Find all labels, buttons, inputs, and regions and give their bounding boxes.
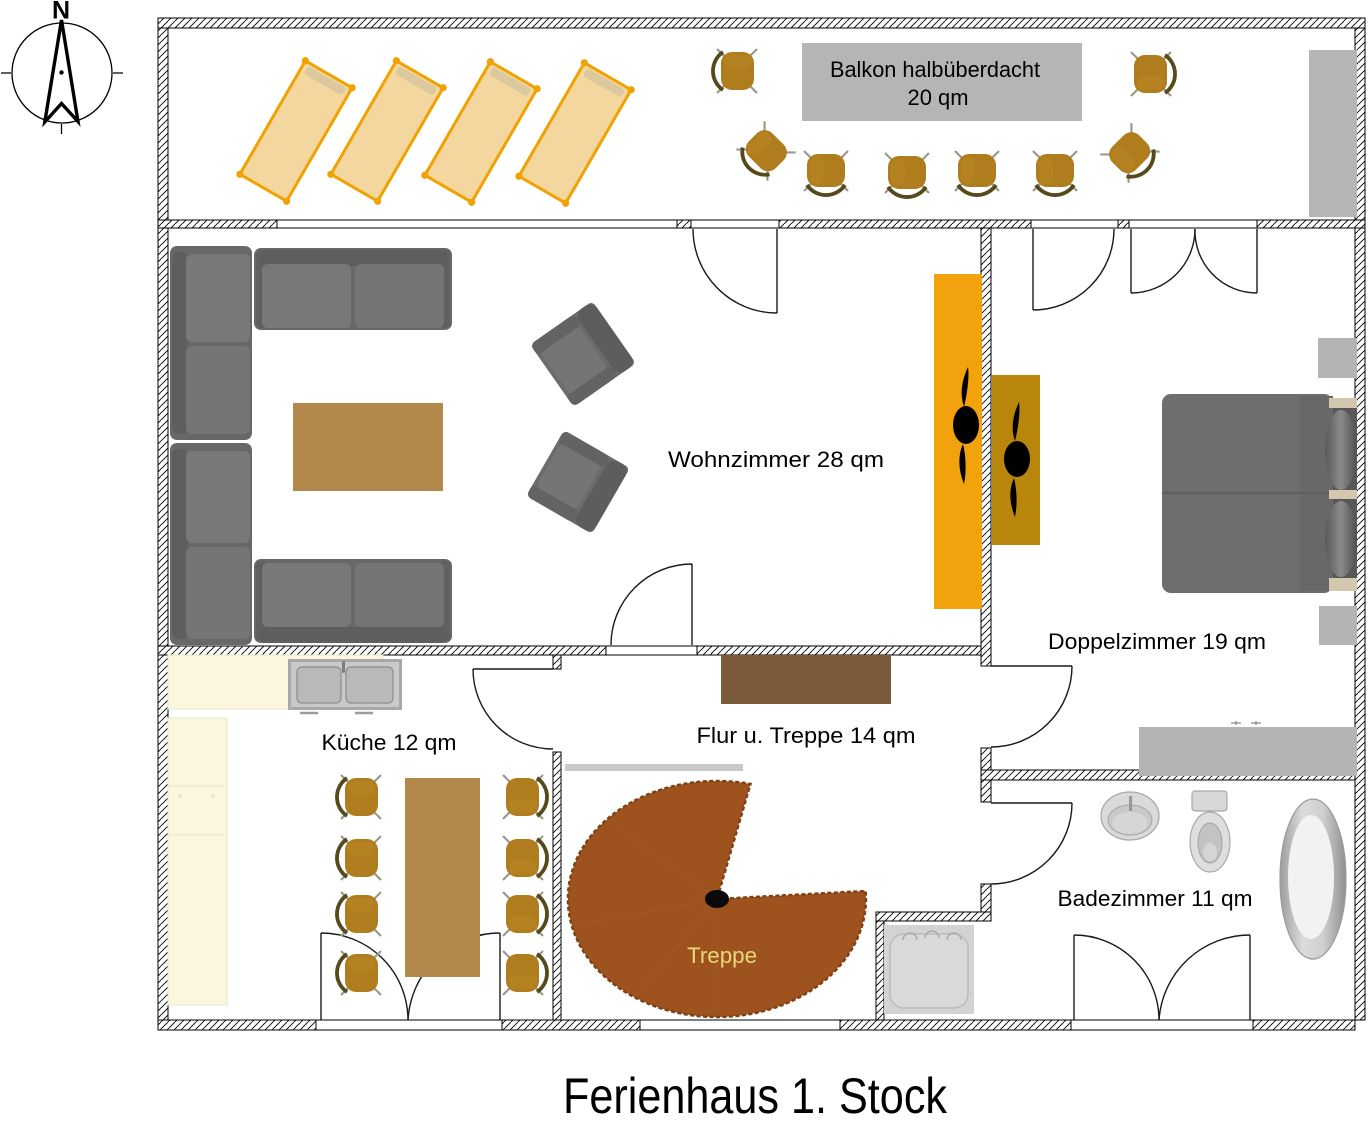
svg-text:Treppe: Treppe bbox=[687, 943, 757, 968]
svg-text:Flur u. Treppe 14 qm: Flur u. Treppe 14 qm bbox=[697, 723, 916, 748]
svg-text:Doppelzimmer 19 qm: Doppelzimmer 19 qm bbox=[1048, 629, 1266, 654]
svg-text:Wohnzimmer 28 qm: Wohnzimmer 28 qm bbox=[668, 447, 884, 472]
svg-text:Balkon halbüberdacht: Balkon halbüberdacht bbox=[830, 57, 1040, 82]
svg-text:Badezimmer 11 qm: Badezimmer 11 qm bbox=[1058, 886, 1253, 911]
svg-text:N: N bbox=[52, 0, 70, 25]
svg-text:20 qm: 20 qm bbox=[908, 85, 969, 110]
svg-text:Ferienhaus 1. Stock: Ferienhaus 1. Stock bbox=[563, 1068, 948, 1124]
svg-text:Küche 12 qm: Küche 12 qm bbox=[322, 730, 457, 755]
